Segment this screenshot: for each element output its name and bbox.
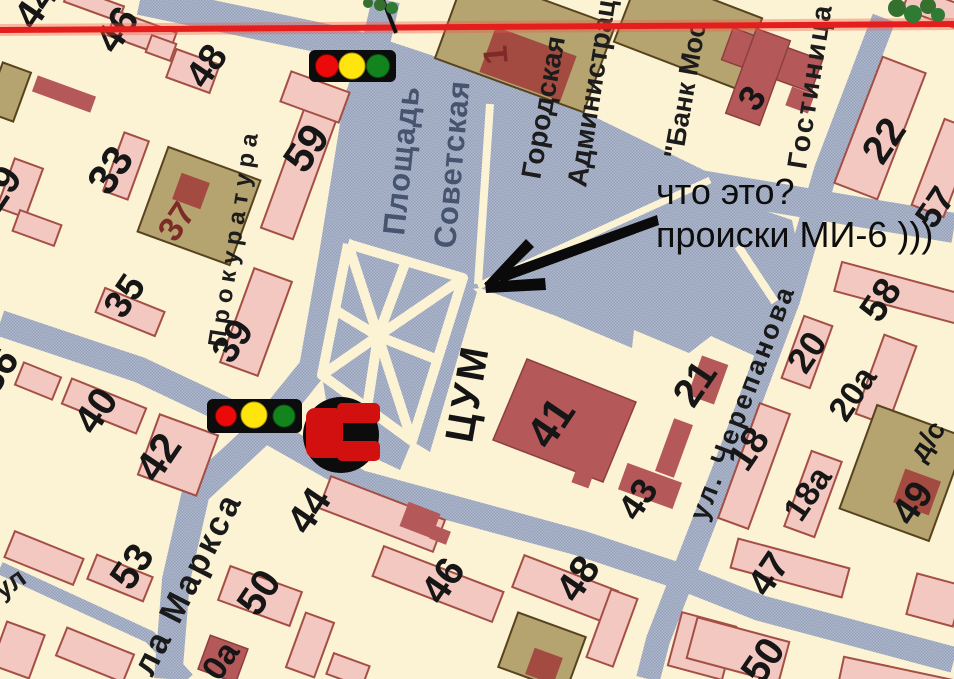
svg-text:происки МИ-6 ))): происки МИ-6 ))) bbox=[656, 214, 933, 255]
svg-text:1: 1 bbox=[476, 44, 516, 66]
svg-text:что это?: что это? bbox=[656, 171, 795, 212]
